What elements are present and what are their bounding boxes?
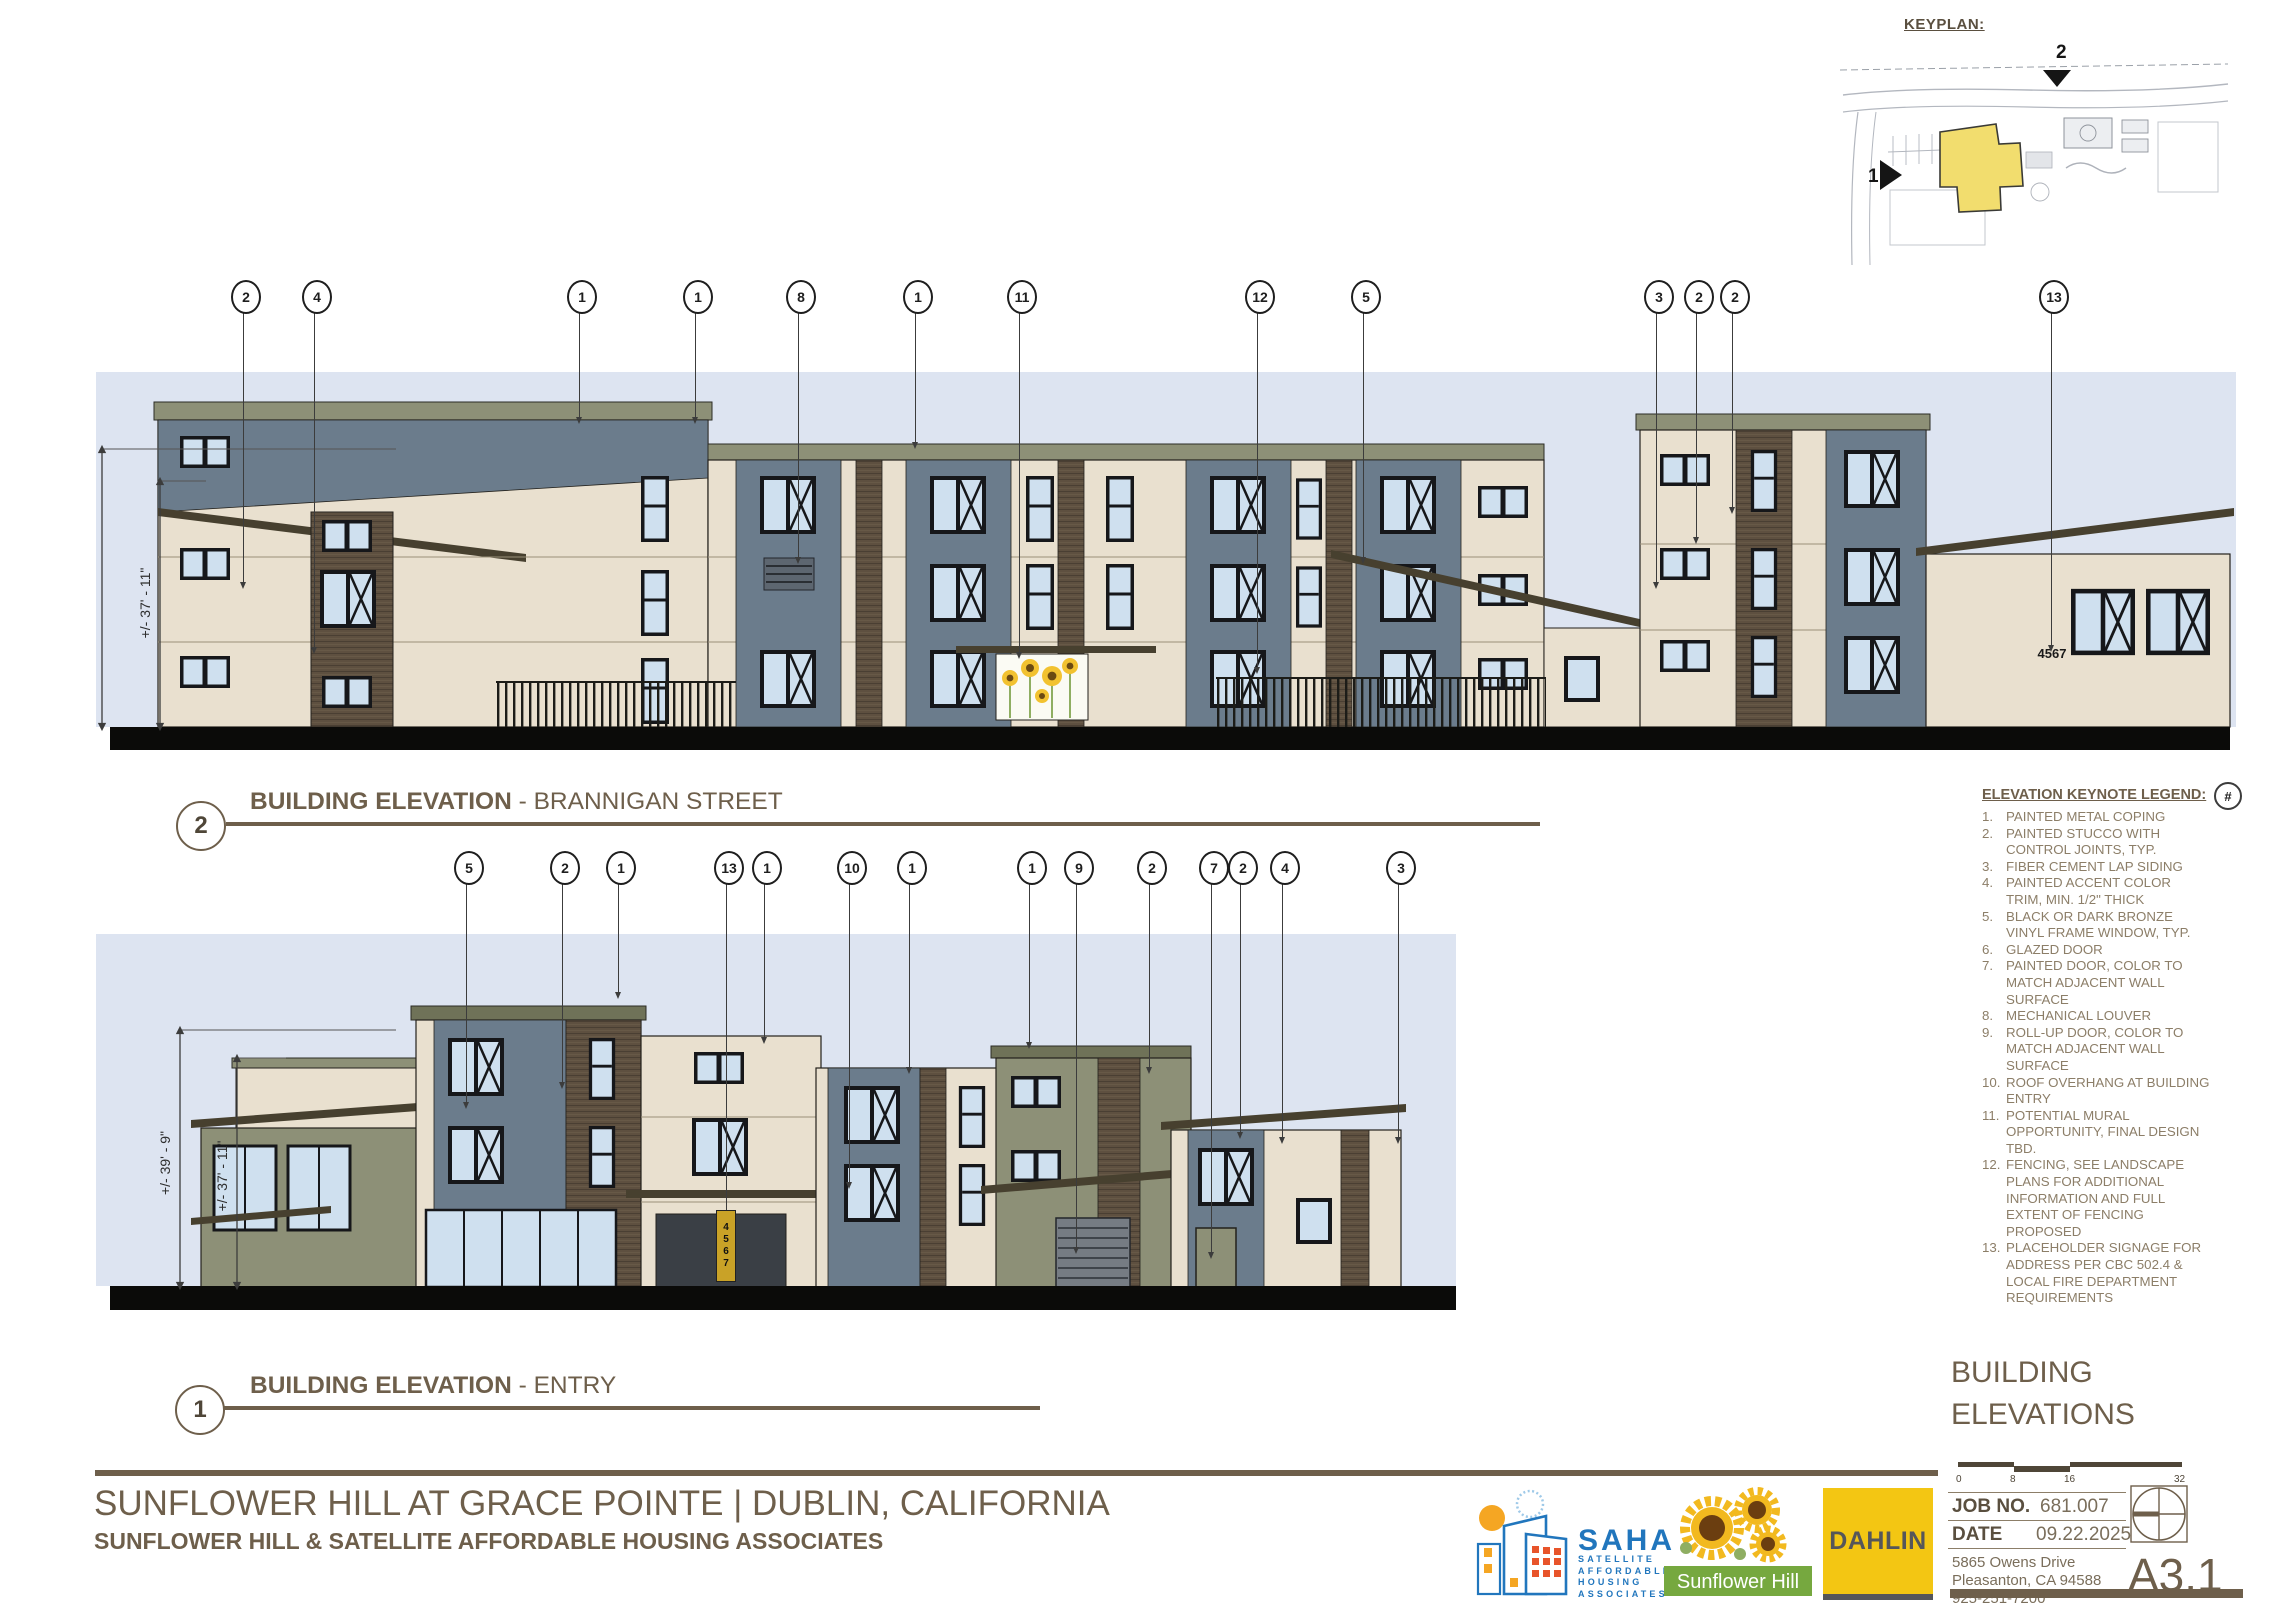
keynote-bubble: 8: [786, 280, 816, 314]
keynote-bubble: 11: [1007, 280, 1037, 314]
leader: [849, 879, 850, 1185]
leader: [243, 308, 244, 585]
legend-item: 6.GLAZED DOOR: [1982, 942, 2234, 959]
keynote-bubble: 2: [231, 280, 261, 314]
keynote-bubble: 1: [903, 280, 933, 314]
keynote-bubble: 3: [1644, 280, 1674, 314]
entry-glazing: [426, 1210, 616, 1287]
legend-item: 13.PLACEHOLDER SIGNAGE FOR ADDRESS PER C…: [1982, 1240, 2234, 1306]
leader: [314, 308, 315, 650]
legend-item: 11.POTENTIAL MURAL OPPORTUNITY, FINAL DE…: [1982, 1108, 2234, 1158]
keyplan-marker-1: 1: [1868, 166, 1879, 187]
keynote-bubble: 1: [683, 280, 713, 314]
sheet-section-title: BUILDING ELEVATIONS: [1951, 1352, 2135, 1436]
keyplan-building-footprint: [1940, 124, 2023, 212]
ground-line: [110, 1286, 1456, 1310]
elevation-entry-drawing: +/- 39' - 9" +/- 37' - 11": [96, 918, 1486, 1310]
dim-37-11: +/- 37' - 11": [137, 568, 153, 639]
elevation-number-bubble: 1: [175, 1385, 225, 1435]
leader: [466, 879, 467, 1105]
keynote-bubble: 12: [1245, 280, 1275, 314]
leader: [909, 879, 910, 1070]
keynote-bubble: 1: [1017, 851, 1047, 885]
keynote-bubble: 2: [1228, 851, 1258, 885]
scale-bar: 0 8 16 32: [1958, 1462, 2182, 1486]
elevation-title: BUILDING ELEVATION - BRANNIGAN STREET: [250, 788, 783, 816]
footer-rule: [95, 1470, 1938, 1476]
leader: [618, 879, 619, 995]
elevation-title-street: - BRANNIGAN STREET: [519, 788, 783, 815]
leader: [2051, 308, 2052, 648]
painted-door: [1196, 1228, 1236, 1287]
leader: [1149, 879, 1150, 1070]
project-title: SUNFLOWER HILL AT GRACE POINTE | DUBLIN,…: [94, 1484, 1110, 1524]
keyplan-drawing: 2 1: [1828, 40, 2238, 280]
elevation-title: BUILDING ELEVATION - ENTRY: [250, 1372, 616, 1400]
firm-address: 5865 Owens Drive Pleasanton, CA 94588 92…: [1952, 1554, 2101, 1608]
job-number-value: 681.007: [2040, 1496, 2109, 1518]
sunflower-mural: [996, 654, 1088, 720]
sunflower-hill-logo: Sunflower Hill: [1662, 1482, 1814, 1600]
keynote-bubble: 3: [1386, 851, 1416, 885]
leader: [1363, 308, 1364, 560]
elevation-number-bubble: 2: [176, 801, 226, 851]
architectural-sheet: KEYPLAN: 2 1: [0, 0, 2272, 1623]
legend-item: 12.FENCING, SEE LANDSCAPE PLANS FOR ADDI…: [1982, 1157, 2234, 1240]
ground-line: [110, 727, 2230, 750]
keynote-bubble: 7: [1199, 851, 1229, 885]
elevation-title-rule: [222, 1406, 1040, 1410]
date-label: DATE: [1952, 1524, 2002, 1546]
dim-37-11: +/- 37' - 11": [214, 1141, 230, 1212]
keynote-bubble: 4: [302, 280, 332, 314]
keynote-bubble: 1: [897, 851, 927, 885]
keynote-bubble: 5: [1351, 280, 1381, 314]
legend-item: 4.PAINTED ACCENT COLOR TRIM, MIN. 1/2" T…: [1982, 875, 2234, 908]
keyplan-marker-2: 2: [2056, 42, 2067, 63]
keynote-bubble: 1: [752, 851, 782, 885]
keynote-bubble: 5: [454, 851, 484, 885]
leader: [579, 308, 580, 420]
divider: [1948, 1492, 2126, 1493]
dim-39-9: +/- 39' - 9": [157, 1131, 173, 1195]
saha-logo-name: SAHA: [1578, 1524, 1675, 1558]
address-signage-vertical: 4567: [716, 1210, 736, 1282]
keynote-bubble: 1: [606, 851, 636, 885]
keynote-bubble: 10: [837, 851, 867, 885]
divider: [1948, 1520, 2126, 1521]
elevation-title-street: - ENTRY: [519, 1372, 617, 1399]
leader: [1696, 308, 1697, 540]
legend-item: 7.PAINTED DOOR, COLOR TO MATCH ADJACENT …: [1982, 958, 2234, 1008]
sunflower-hill-logo-text: Sunflower Hill: [1677, 1571, 1799, 1593]
legend-item: 8.MECHANICAL LOUVER: [1982, 1008, 2234, 1025]
legend-item: 3.FIBER CEMENT LAP SIDING: [1982, 859, 2234, 876]
keynote-bubble: 4: [1270, 851, 1300, 885]
leader: [1211, 879, 1212, 1255]
dahlin-logo-bar: [1823, 1594, 1933, 1600]
dahlin-logo: DAHLIN: [1823, 1488, 1933, 1594]
leader: [1398, 879, 1399, 1140]
legend-item: 10.ROOF OVERHANG AT BUILDING ENTRY: [1982, 1075, 2234, 1108]
leader: [1240, 879, 1241, 1135]
legend-title: ELEVATION KEYNOTE LEGEND:: [1982, 787, 2206, 803]
north-crosshair-symbol: [2130, 1485, 2188, 1543]
keynote-bubble: 1: [567, 280, 597, 314]
leader: [1732, 308, 1733, 510]
keynote-bubble: 13: [2039, 280, 2069, 314]
keynote-bubble: 2: [1684, 280, 1714, 314]
leader: [562, 879, 563, 1085]
elevation-title-main: BUILDING ELEVATION: [250, 1372, 512, 1399]
project-subtitle: SUNFLOWER HILL & SATELLITE AFFORDABLE HO…: [94, 1528, 883, 1555]
keynote-symbol: #: [2214, 782, 2242, 810]
legend-item: 2.PAINTED STUCCO WITH CONTROL JOINTS, TY…: [1982, 826, 2234, 859]
divider: [1948, 1548, 2126, 1549]
keynote-legend: ELEVATION KEYNOTE LEGEND: # 1.PAINTED ME…: [1982, 786, 2234, 1307]
leader: [695, 308, 696, 420]
leader: [1029, 879, 1030, 1045]
leader: [1656, 308, 1657, 585]
date-value: 09.22.2025: [2036, 1524, 2131, 1546]
elevation-title-rule: [226, 822, 1540, 826]
legend-item: 5.BLACK OR DARK BRONZE VINYL FRAME WINDO…: [1982, 909, 2234, 942]
sunflower-icon: [1680, 1491, 1783, 1560]
keynote-bubble: 2: [1137, 851, 1167, 885]
leader: [1257, 308, 1258, 670]
leader: [1076, 879, 1077, 1250]
dahlin-logo-text: DAHLIN: [1829, 1527, 1926, 1556]
saha-logo-icon: [1474, 1486, 1568, 1598]
keynote-bubble: 13: [714, 851, 744, 885]
elevation-brannigan-drawing: 4567 +/- 39' - 9" +/- 37' - 11": [96, 358, 2236, 750]
leader: [1019, 308, 1020, 655]
keynote-bubble: 9: [1064, 851, 1094, 885]
legend-item: 1.PAINTED METAL COPING: [1982, 809, 2234, 826]
leader: [1282, 879, 1283, 1140]
saha-logo-tagline: SATELLITE AFFORDABLE HOUSING ASSOCIATES: [1578, 1554, 1672, 1600]
keynote-bubble: 2: [1720, 280, 1750, 314]
leader: [726, 879, 727, 1213]
legend-item: 9.ROLL-UP DOOR, COLOR TO MATCH ADJACENT …: [1982, 1025, 2234, 1075]
keynote-bubble: 2: [550, 851, 580, 885]
titleblock-bottom-bar: [1950, 1589, 2243, 1598]
elevation-title-main: BUILDING ELEVATION: [250, 788, 512, 815]
leader: [915, 308, 916, 445]
leader: [764, 879, 765, 1040]
job-number-label: JOB NO.: [1952, 1496, 2030, 1518]
keyplan-label: KEYPLAN:: [1904, 16, 1985, 33]
leader: [798, 308, 799, 560]
